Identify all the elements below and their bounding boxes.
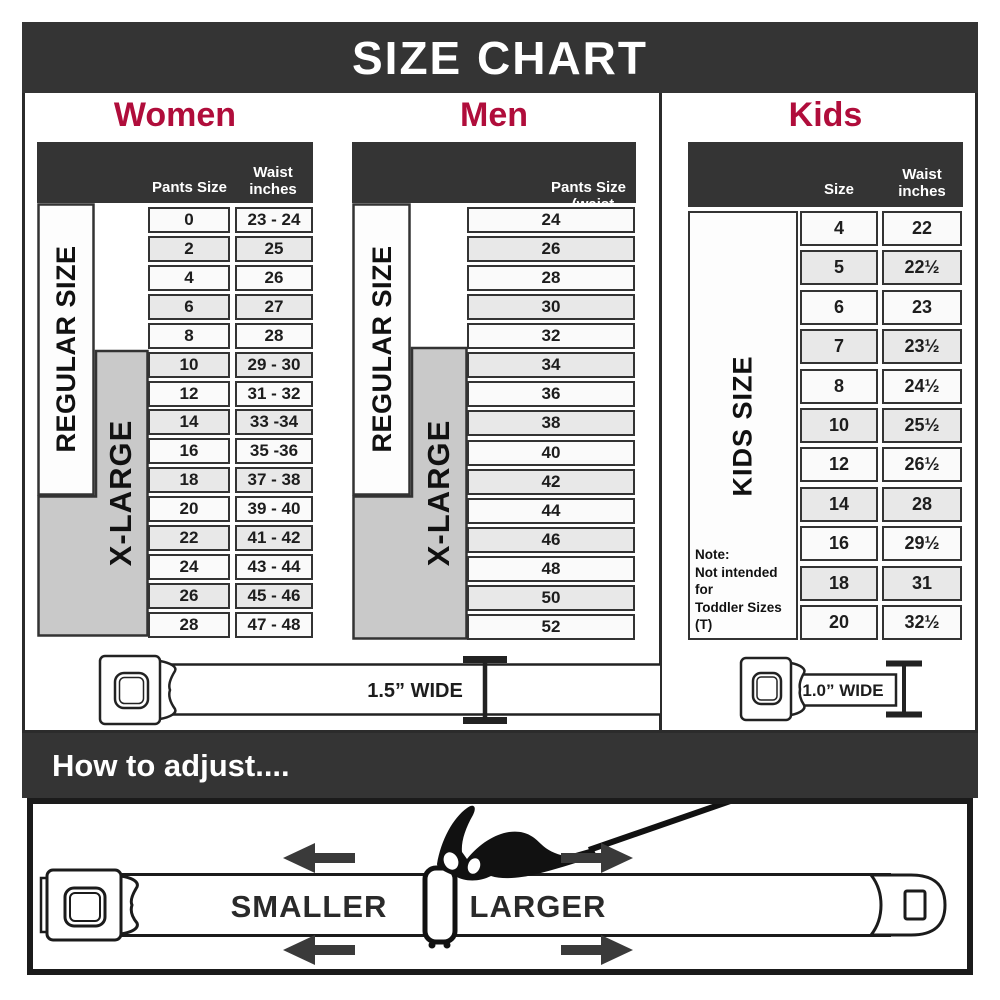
table-row: 44 xyxy=(467,498,635,524)
table-row: 2847 - 48 xyxy=(148,612,313,638)
men-table-rows: 242628303234363840424446485052 xyxy=(467,207,635,640)
cell-waist: 27 xyxy=(235,294,313,320)
kids-col-size: Size xyxy=(800,181,878,198)
cell-waist: 25½ xyxy=(882,408,962,443)
table-row: 52 xyxy=(467,614,635,640)
cell-waist: 31 - 32 xyxy=(235,381,313,407)
women-col-pants-size: Pants Size xyxy=(148,179,231,196)
cell-waist: 26½ xyxy=(882,447,962,482)
adult-belt-graphic: 1.5” WIDE xyxy=(85,649,660,731)
larger-label: LARGER xyxy=(470,889,607,924)
men-table-header: Pants Size (waist inches) xyxy=(352,142,636,203)
men-col-line1: Pants Size xyxy=(551,179,626,196)
cell-value: 32 xyxy=(467,323,635,349)
kids-note: Note: Not intended for Toddler Sizes (T) xyxy=(695,546,796,634)
cell-size: 28 xyxy=(148,612,230,638)
cell-size: 5 xyxy=(800,250,878,285)
women-size-range-labels: REGULAR SIZE X-LARGE xyxy=(37,203,149,637)
slider-foot-left xyxy=(429,942,436,949)
table-row: 1433 -34 xyxy=(148,409,313,435)
cell-size: 7 xyxy=(800,329,878,364)
cell-size: 14 xyxy=(148,409,230,435)
table-row: 1635 -36 xyxy=(148,438,313,464)
table-row: 32 xyxy=(467,323,635,349)
cell-value: 28 xyxy=(467,265,635,291)
cell-waist: 26 xyxy=(235,265,313,291)
arrow-left-bottom-icon xyxy=(283,935,355,965)
cell-waist: 22 xyxy=(882,211,962,246)
cell-size: 4 xyxy=(800,211,878,246)
table-row: 225 xyxy=(148,236,313,262)
cell-value: 34 xyxy=(467,352,635,378)
belt-slider xyxy=(425,868,455,942)
table-row: 2241 - 42 xyxy=(148,525,313,551)
adjust-belt-illustration: SMALLER LARGER xyxy=(33,804,967,969)
adjust-illustration-panel: SMALLER LARGER xyxy=(27,798,973,975)
cell-waist: 47 - 48 xyxy=(235,612,313,638)
kids-note-line2: Toddler Sizes (T) xyxy=(695,600,782,633)
table-row: 1029 - 30 xyxy=(148,352,313,378)
table-row: 1629½ xyxy=(800,526,962,561)
cell-size: 16 xyxy=(148,438,230,464)
kids-heading: Kids xyxy=(688,96,963,136)
belt-tongue-slot xyxy=(905,891,925,919)
women-regular-label: REGULAR SIZE xyxy=(51,245,81,452)
women-xlarge-label: X-LARGE xyxy=(103,420,138,567)
cell-waist: 32½ xyxy=(882,605,962,640)
cell-size: 16 xyxy=(800,526,878,561)
cell-value: 26 xyxy=(467,236,635,262)
cell-waist: 41 - 42 xyxy=(235,525,313,551)
cell-size: 20 xyxy=(800,605,878,640)
cell-waist: 22½ xyxy=(882,250,962,285)
table-row: 1428 xyxy=(800,487,962,522)
cell-value: 36 xyxy=(467,381,635,407)
cell-size: 20 xyxy=(148,496,230,522)
cell-size: 10 xyxy=(800,408,878,443)
cell-size: 26 xyxy=(148,583,230,609)
kids-table-header: Size Waist inches xyxy=(688,142,963,207)
cell-size: 14 xyxy=(800,487,878,522)
table-row: 24 xyxy=(467,207,635,233)
cell-value: 50 xyxy=(467,585,635,611)
table-row: 1025½ xyxy=(800,408,962,443)
kids-col-waist-inches: Waist inches xyxy=(884,166,960,201)
cell-waist: 28 xyxy=(235,323,313,349)
cell-waist: 29½ xyxy=(882,526,962,561)
cell-value: 44 xyxy=(467,498,635,524)
cell-size: 12 xyxy=(800,447,878,482)
kids-note-title: Note: xyxy=(695,547,730,562)
arrow-right-bottom-icon xyxy=(561,935,633,965)
cell-waist: 43 - 44 xyxy=(235,554,313,580)
table-row: 2039 - 40 xyxy=(148,496,313,522)
table-row: 2645 - 46 xyxy=(148,583,313,609)
cell-size: 2 xyxy=(148,236,230,262)
kids-size-label-block: KIDS SIZE Note: Not intended for Toddler… xyxy=(688,211,798,640)
adjust-heading: How to adjust.... xyxy=(22,733,978,798)
cell-size: 18 xyxy=(800,566,878,601)
adult-belt-width-label: 1.5” WIDE xyxy=(367,680,463,702)
cell-waist: 23 xyxy=(882,290,962,325)
table-row: 34 xyxy=(467,352,635,378)
kids-table-rows: 422522½623723½824½1025½1226½14281629½183… xyxy=(800,211,962,640)
cell-size: 12 xyxy=(148,381,230,407)
men-regular-label: REGULAR SIZE xyxy=(367,245,397,452)
table-row: 1837 - 38 xyxy=(148,467,313,493)
kids-belt-width-label: 1.0” WIDE xyxy=(802,681,883,700)
women-heading: Women xyxy=(37,96,313,136)
table-row: 36 xyxy=(467,381,635,407)
cell-size: 6 xyxy=(800,290,878,325)
cell-waist: 29 - 30 xyxy=(235,352,313,378)
cell-waist: 23 - 24 xyxy=(235,207,313,233)
table-row: 38 xyxy=(467,410,635,436)
cell-value: 48 xyxy=(467,556,635,582)
men-size-range-labels: REGULAR SIZE X-LARGE xyxy=(352,203,468,640)
cell-waist: 39 - 40 xyxy=(235,496,313,522)
cell-size: 10 xyxy=(148,352,230,378)
cell-waist: 31 xyxy=(882,566,962,601)
kids-note-line1: Not intended for xyxy=(695,565,778,598)
women-table-header: Pants Size Waist inches xyxy=(37,142,313,203)
cell-value: 40 xyxy=(467,440,635,466)
table-row: 28 xyxy=(467,265,635,291)
table-row: 2443 - 44 xyxy=(148,554,313,580)
table-row: 42 xyxy=(467,469,635,495)
table-row: 46 xyxy=(467,527,635,553)
table-row: 824½ xyxy=(800,369,962,404)
table-row: 023 - 24 xyxy=(148,207,313,233)
cell-size: 22 xyxy=(148,525,230,551)
kids-belt-graphic: 1.0” WIDE xyxy=(733,650,923,728)
cell-waist: 45 - 46 xyxy=(235,583,313,609)
table-row: 426 xyxy=(148,265,313,291)
table-row: 522½ xyxy=(800,250,962,285)
cell-waist: 37 - 38 xyxy=(235,467,313,493)
cell-waist: 23½ xyxy=(882,329,962,364)
women-table-rows: 023 - 242254266278281029 - 301231 - 3214… xyxy=(148,207,313,638)
cell-waist: 24½ xyxy=(882,369,962,404)
cell-size: 4 xyxy=(148,265,230,291)
table-row: 627 xyxy=(148,294,313,320)
table-row: 40 xyxy=(467,440,635,466)
pulled-strap-line xyxy=(589,804,739,850)
table-row: 48 xyxy=(467,556,635,582)
smaller-label: SMALLER xyxy=(231,889,388,924)
cell-value: 42 xyxy=(467,469,635,495)
cell-waist: 35 -36 xyxy=(235,438,313,464)
table-row: 50 xyxy=(467,585,635,611)
cell-size: 18 xyxy=(148,467,230,493)
arrow-left-top-icon xyxy=(283,843,355,873)
kids-size-label: KIDS SIZE xyxy=(728,355,759,496)
cell-waist: 33 -34 xyxy=(235,409,313,435)
cell-value: 38 xyxy=(467,410,635,436)
men-heading: Men xyxy=(352,96,636,136)
table-row: 422 xyxy=(800,211,962,246)
cell-value: 24 xyxy=(467,207,635,233)
women-col-waist-inches: Waist inches xyxy=(235,164,311,199)
table-row: 1226½ xyxy=(800,447,962,482)
cell-size: 6 xyxy=(148,294,230,320)
men-col-pants-size: Pants Size (waist inches) xyxy=(467,179,635,196)
table-row: 26 xyxy=(467,236,635,262)
men-xlarge-label: X-LARGE xyxy=(421,420,456,567)
table-row: 828 xyxy=(148,323,313,349)
cell-waist: 28 xyxy=(882,487,962,522)
panel-divider xyxy=(659,93,662,733)
cell-value: 52 xyxy=(467,614,635,640)
cell-size: 8 xyxy=(800,369,878,404)
cell-waist: 25 xyxy=(235,236,313,262)
cell-size: 24 xyxy=(148,554,230,580)
cell-size: 8 xyxy=(148,323,230,349)
cell-value: 30 xyxy=(467,294,635,320)
hand-icon xyxy=(437,806,597,881)
cell-size: 0 xyxy=(148,207,230,233)
page-title: SIZE CHART xyxy=(22,22,978,93)
table-row: 30 xyxy=(467,294,635,320)
slider-foot-right xyxy=(444,942,451,949)
cell-value: 46 xyxy=(467,527,635,553)
table-row: 2032½ xyxy=(800,605,962,640)
table-row: 1231 - 32 xyxy=(148,381,313,407)
table-row: 723½ xyxy=(800,329,962,364)
table-row: 1831 xyxy=(800,566,962,601)
table-row: 623 xyxy=(800,290,962,325)
